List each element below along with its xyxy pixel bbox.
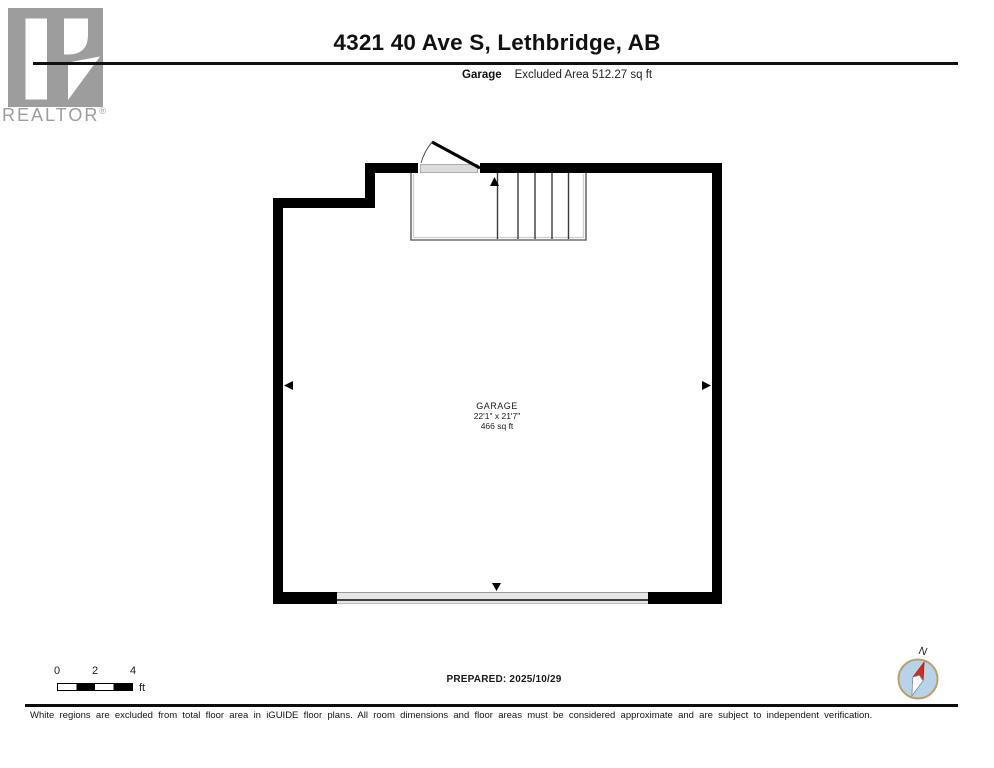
stair-treads bbox=[498, 173, 569, 239]
wall-step-horizontal bbox=[273, 198, 375, 208]
wall-left bbox=[273, 198, 283, 604]
garage-door-opening bbox=[337, 592, 648, 604]
footer-divider-line bbox=[25, 704, 958, 707]
realtor-logo-icon bbox=[8, 8, 103, 107]
wall-top-right-of-door bbox=[480, 163, 722, 173]
floor-label: Garage bbox=[462, 69, 502, 81]
floorplan-page: REALTOR® 4321 40 Ave S, Lethbridge, AB G… bbox=[0, 0, 994, 768]
disclaimer-text: White regions are excluded from total fl… bbox=[30, 710, 970, 721]
realtor-wordmark: REALTOR® bbox=[2, 105, 106, 126]
wall-bottom-left-of-garage-door bbox=[273, 592, 337, 604]
excluded-area-label: Excluded Area 512.27 sq ft bbox=[515, 69, 652, 81]
room-dimensions: 22'1" x 21'7" bbox=[397, 411, 597, 421]
stair-landing-outline bbox=[411, 173, 586, 240]
arrow-left-icon bbox=[284, 381, 293, 390]
garage-door-line bbox=[337, 599, 648, 601]
door-swing-arc bbox=[421, 142, 432, 163]
wall-right bbox=[712, 163, 722, 604]
arrow-right-icon bbox=[702, 381, 711, 390]
realtor-wordmark-text: REALTOR bbox=[2, 105, 99, 125]
room-area: 466 sq ft bbox=[397, 421, 597, 431]
compass-icon: N bbox=[893, 638, 943, 702]
registered-mark: ® bbox=[99, 106, 106, 116]
arrow-up-icon bbox=[490, 177, 499, 186]
wall-bottom-right-of-garage-door bbox=[648, 592, 722, 604]
page-title: 4321 40 Ave S, Lethbridge, AB bbox=[0, 30, 994, 56]
floor-subtitle: Garage Excluded Area 512.27 sq ft bbox=[462, 69, 652, 81]
arrow-down-icon bbox=[492, 583, 501, 591]
room-name: GARAGE bbox=[397, 401, 597, 411]
entry-door-sill bbox=[420, 164, 478, 173]
plan-linework bbox=[0, 0, 994, 768]
header-divider-line bbox=[33, 62, 958, 65]
room-label: GARAGE 22'1" x 21'7" 466 sq ft bbox=[397, 401, 597, 431]
compass-north-label: N bbox=[918, 645, 928, 658]
prepared-date: PREPARED: 2025/10/29 bbox=[14, 674, 994, 685]
stair-landing-outline-shadow bbox=[414, 174, 584, 238]
